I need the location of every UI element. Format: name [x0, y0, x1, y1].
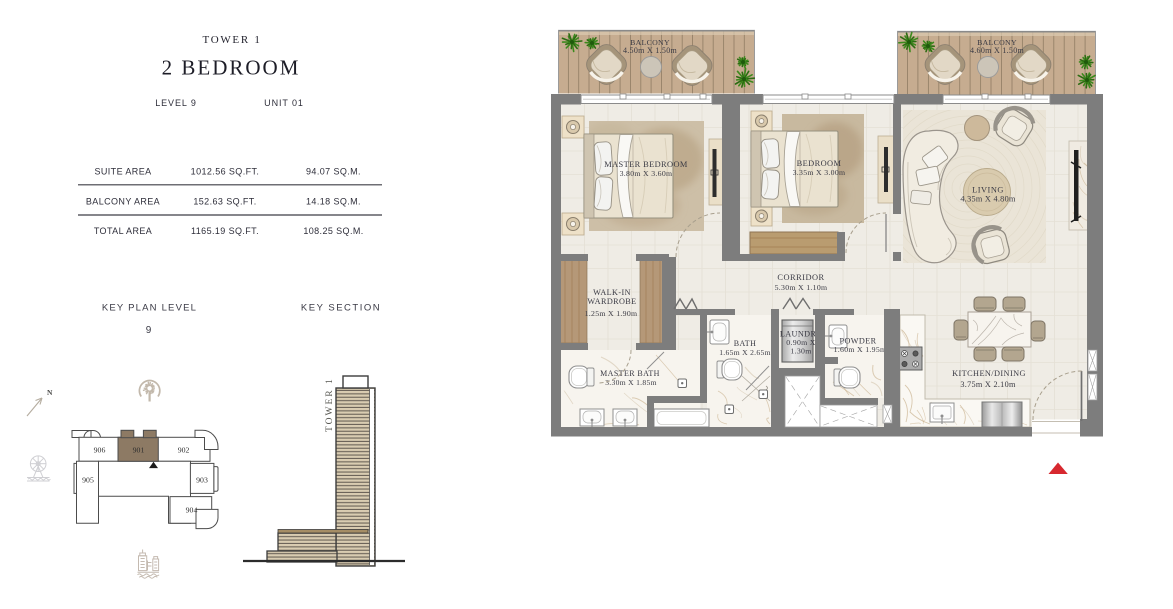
- svg-text:TOWER 1: TOWER 1: [202, 34, 261, 46]
- svg-text:BATH: BATH: [734, 339, 757, 348]
- svg-text:2 BEDROOM: 2 BEDROOM: [162, 56, 301, 80]
- svg-text:904: 904: [186, 506, 198, 515]
- svg-text:N: N: [47, 388, 53, 397]
- svg-text:152.63 SQ.FT.: 152.63 SQ.FT.: [193, 197, 256, 207]
- svg-text:4.35m X 4.80m: 4.35m X 4.80m: [960, 195, 1016, 204]
- svg-text:3.35m X 3.00m: 3.35m X 3.00m: [793, 168, 846, 177]
- svg-text:902: 902: [178, 446, 190, 455]
- svg-text:4.60m X 1.50m: 4.60m X 1.50m: [970, 46, 1025, 55]
- svg-text:CORRIDOR: CORRIDOR: [777, 273, 824, 282]
- svg-text:MASTER BEDROOM: MASTER BEDROOM: [604, 160, 688, 169]
- svg-text:MASTER BATH: MASTER BATH: [600, 369, 660, 378]
- svg-text:1.60m X 1.95m: 1.60m X 1.95m: [834, 345, 887, 354]
- svg-text:3.75m X 2.10m: 3.75m X 2.10m: [960, 380, 1016, 389]
- svg-text:3.80m X 3.60m: 3.80m X 3.60m: [620, 169, 673, 178]
- svg-text:LIVING: LIVING: [972, 186, 1004, 195]
- svg-text:BALCONY AREA: BALCONY AREA: [86, 197, 160, 207]
- svg-text:KEY SECTION: KEY SECTION: [301, 302, 381, 313]
- svg-text:1165.19 SQ.FT.: 1165.19 SQ.FT.: [191, 226, 259, 236]
- svg-text:1012.56 SQ.FT.: 1012.56 SQ.FT.: [191, 167, 260, 177]
- svg-text:14.18 SQ.M.: 14.18 SQ.M.: [306, 197, 361, 207]
- svg-text:KEY PLAN LEVEL: KEY PLAN LEVEL: [102, 302, 197, 313]
- svg-text:1.30m: 1.30m: [790, 347, 811, 356]
- svg-text:TOWER 1: TOWER 1: [325, 377, 335, 432]
- svg-text:108.25 SQ.M.: 108.25 SQ.M.: [303, 226, 363, 236]
- svg-text:905: 905: [82, 476, 94, 485]
- svg-text:1.65m X 2.65m: 1.65m X 2.65m: [719, 348, 771, 357]
- svg-text:LEVEL 9: LEVEL 9: [155, 98, 197, 108]
- svg-text:WALK-IN: WALK-IN: [593, 288, 631, 297]
- svg-text:TOTAL AREA: TOTAL AREA: [94, 226, 152, 236]
- svg-text:KITCHEN/DINING: KITCHEN/DINING: [952, 369, 1026, 378]
- svg-text:UNIT 01: UNIT 01: [264, 98, 304, 108]
- svg-text:906: 906: [94, 446, 106, 455]
- svg-text:901: 901: [133, 446, 145, 455]
- svg-text:903: 903: [196, 476, 208, 485]
- svg-text:4.50m X 1.50m: 4.50m X 1.50m: [623, 46, 678, 55]
- svg-text:SUITE AREA: SUITE AREA: [94, 167, 151, 177]
- svg-text:WARDROBE: WARDROBE: [587, 297, 636, 306]
- svg-text:9: 9: [146, 325, 152, 336]
- svg-text:5.30m X 1.10m: 5.30m X 1.10m: [775, 283, 828, 292]
- svg-text:94.07 SQ.M.: 94.07 SQ.M.: [306, 167, 361, 177]
- svg-text:1.25m X 1.90m: 1.25m X 1.90m: [585, 309, 638, 318]
- svg-text:BEDROOM: BEDROOM: [797, 159, 842, 168]
